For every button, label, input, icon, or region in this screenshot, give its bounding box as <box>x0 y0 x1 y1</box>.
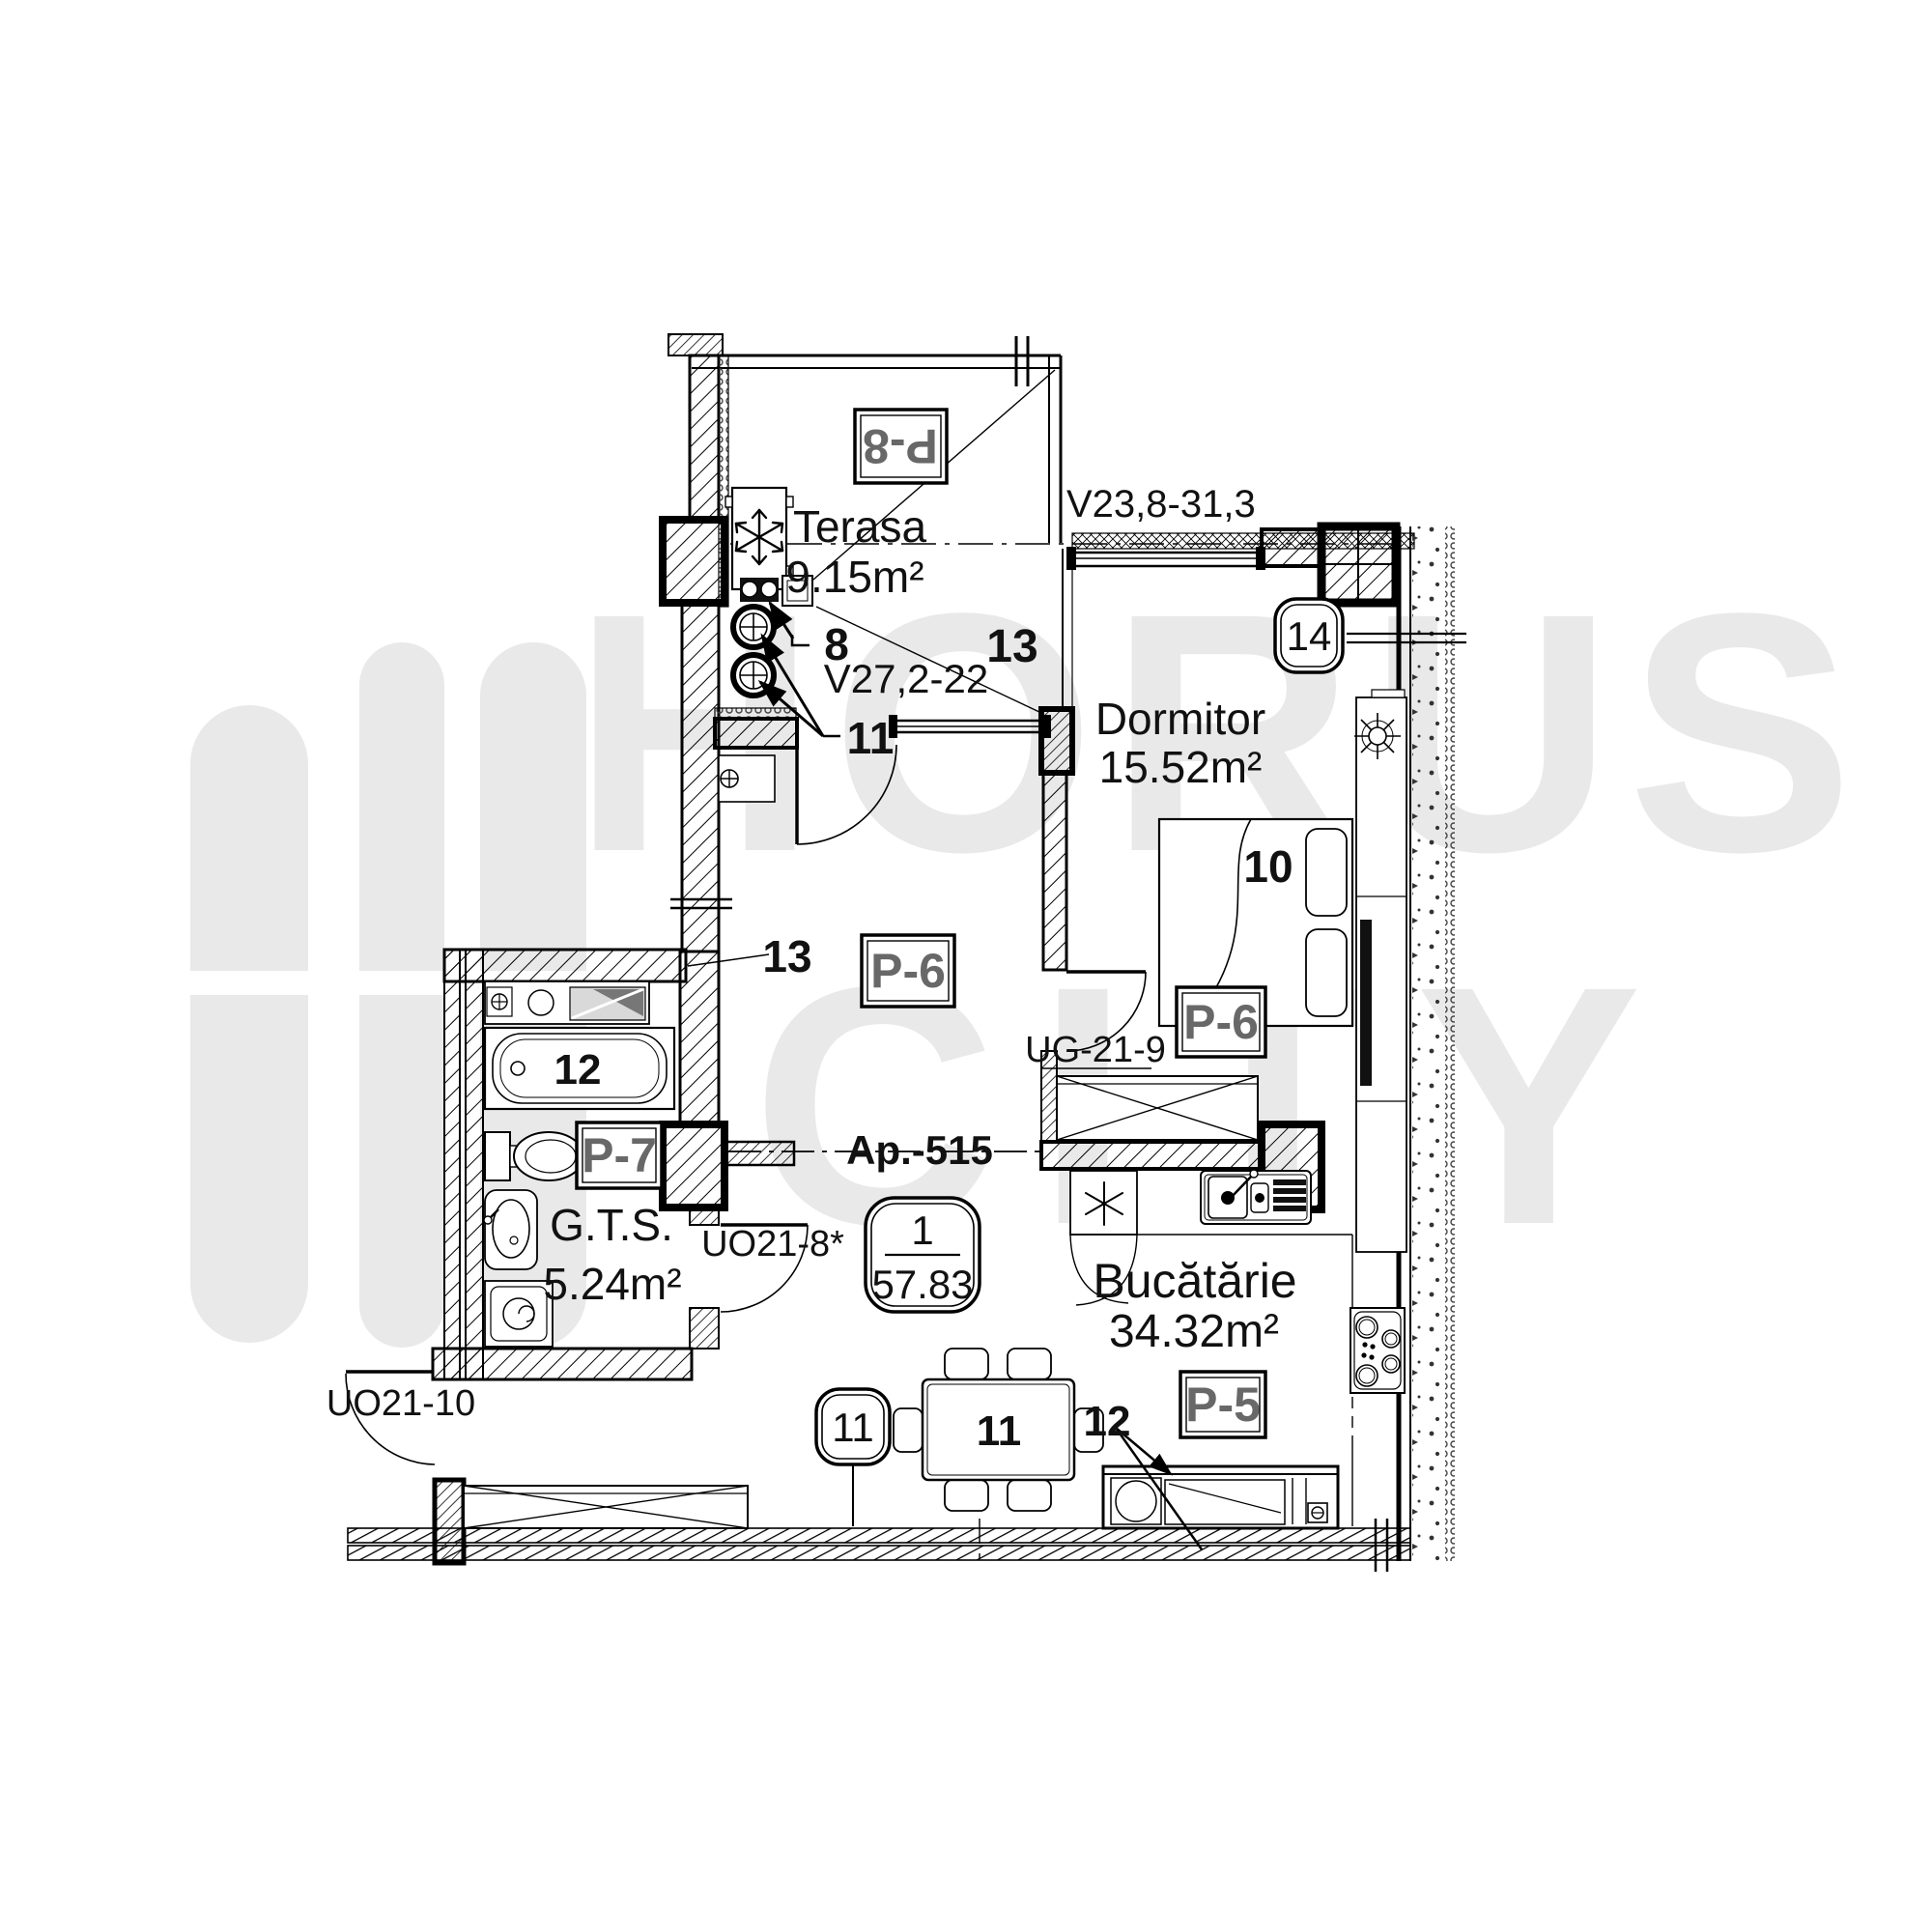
riser-pipe <box>733 607 774 647</box>
parapet-break-ticks <box>1016 336 1028 386</box>
circled-cross-icon <box>492 994 507 1009</box>
plabel-p6-dormitor-text: P-6 <box>1183 995 1259 1049</box>
dining-area <box>894 1349 1338 1549</box>
number-12-sofa: 12 <box>1084 1398 1131 1445</box>
badge-11-number: 11 <box>832 1405 874 1450</box>
number-12-bathtub: 12 <box>554 1046 602 1094</box>
apartment-total-area: 57.83 <box>871 1262 973 1307</box>
stove <box>1350 1308 1405 1393</box>
plabel-p6-hall: P-6 <box>862 935 954 1007</box>
insulation-chain <box>1445 526 1455 1561</box>
number-13-terasa: 13 <box>986 621 1037 672</box>
kitchen-sink <box>1201 1170 1311 1224</box>
sofa <box>1103 1466 1338 1528</box>
badge-14-number: 14 <box>1287 613 1332 659</box>
gts-area: 5.24m² <box>543 1259 681 1309</box>
plabel-p5-text: P-5 <box>1185 1378 1261 1432</box>
plabel-p8-text: P-8 <box>863 419 938 473</box>
apartment-number: 1 <box>911 1207 933 1253</box>
entry-door-code: UO21-10 <box>327 1383 475 1424</box>
terasa-name: Terasa <box>793 501 926 552</box>
leader-8 <box>792 635 810 645</box>
toilet <box>485 1132 583 1180</box>
plant-icon <box>1354 713 1401 759</box>
dormitor-area: 15.52m² <box>1099 742 1263 792</box>
number-8: 8 <box>824 619 849 669</box>
pillar <box>663 520 724 603</box>
tv <box>1360 920 1372 1086</box>
plabel-p7: P-7 <box>577 1122 662 1188</box>
pillow <box>1306 829 1347 916</box>
badge-11: 11 <box>816 1389 890 1526</box>
badge-14: 14 <box>1275 599 1343 672</box>
dormitor-name: Dormitor <box>1095 694 1265 744</box>
bathroom-door-code: UO21-8* <box>701 1224 844 1264</box>
bucatarie-area: 34.32m² <box>1109 1306 1279 1357</box>
pillow <box>1306 929 1347 1016</box>
terrace-openings <box>797 709 1072 844</box>
circled-cross-icon <box>721 770 738 787</box>
apartment-code: Ap.-515 <box>846 1127 993 1173</box>
plabel-p8: P-8 <box>855 410 947 483</box>
pillar <box>663 1124 724 1207</box>
floorplan-svg: 14 11 1 57.83 P-8 P-6 P-6 P-7 P-5 <box>0 0 1932 1932</box>
corner-stub <box>1041 709 1072 773</box>
terasa-area: 9.15m² <box>785 552 923 602</box>
number-10: 10 <box>1243 841 1293 892</box>
plabel-p5: P-5 <box>1180 1372 1265 1437</box>
number-13-hall: 13 <box>762 931 811 981</box>
number-11-risers: 11 <box>847 713 895 763</box>
apartment-badge: 1 57.83 <box>866 1198 980 1312</box>
gts-name: G.T.S. <box>550 1200 673 1250</box>
insulation-speckle <box>1412 526 1443 1561</box>
number-11-table: 11 <box>977 1407 1022 1455</box>
plabel-p7-text: P-7 <box>582 1128 657 1182</box>
bucatarie-name: Bucătărie <box>1093 1254 1296 1308</box>
left-walls <box>663 334 797 952</box>
wash-basin <box>484 1190 537 1269</box>
dormitor-window-code: V23,8-31,3 <box>1066 483 1256 526</box>
dormitor-wardrobe-code: UG-21-9 <box>1025 1030 1166 1070</box>
plabel-p6-dormitor: P-6 <box>1177 987 1265 1057</box>
plabel-p6-hall-text: P-6 <box>870 944 946 998</box>
